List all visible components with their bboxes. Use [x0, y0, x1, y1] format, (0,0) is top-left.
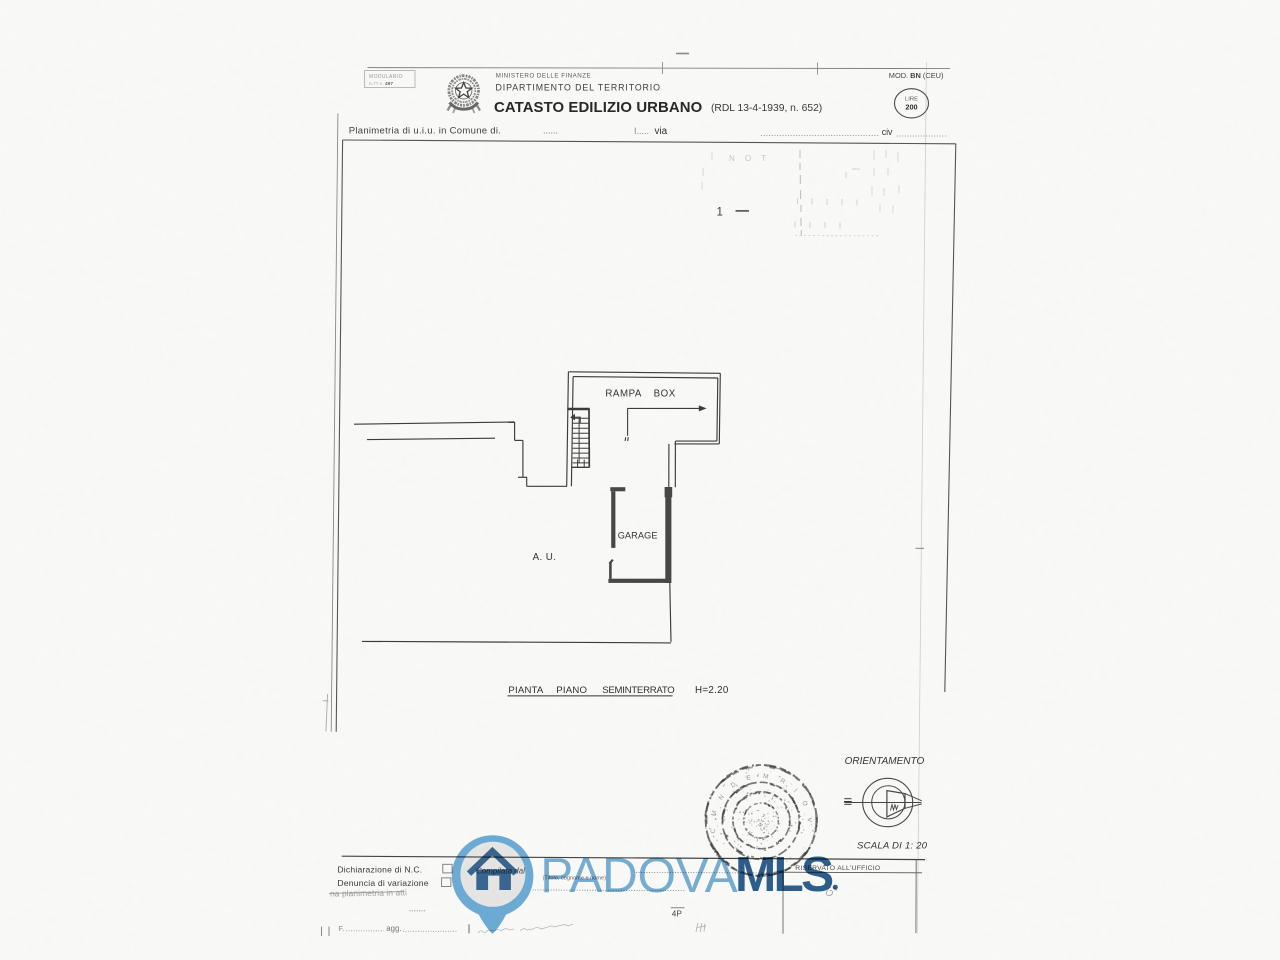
- svg-text:BOX: BOX: [654, 389, 676, 400]
- svg-text:MODULARIO: MODULARIO: [369, 74, 403, 80]
- svg-text:PIANTA: PIANTA: [508, 685, 544, 696]
- svg-text:F.: F.: [339, 924, 345, 933]
- svg-text:I.....: I.....: [634, 126, 649, 136]
- svg-text:H=2.20: H=2.20: [695, 685, 729, 696]
- svg-text:GARAGE: GARAGE: [618, 531, 658, 541]
- svg-text:MINISTERO DELLE FINANZE: MINISTERO DELLE FINANZE: [496, 73, 591, 80]
- svg-text:agg.: agg.: [386, 924, 401, 933]
- svg-text:200: 200: [905, 103, 917, 112]
- svg-text:CATASTO EDILIZIO URBANO: CATASTO EDILIZIO URBANO: [494, 100, 702, 116]
- svg-text:Dichiarazione di N.C.: Dichiarazione di N.C.: [337, 865, 422, 875]
- svg-text:RAMPA: RAMPA: [605, 389, 641, 400]
- svg-text:......: ......: [543, 126, 558, 136]
- svg-text:DIPARTIMENTO DEL TERRITORIO: DIPARTIMENTO DEL TERRITORIO: [496, 82, 661, 92]
- svg-text:via: via: [655, 126, 668, 137]
- svg-text:1: 1: [717, 207, 723, 219]
- svg-text:A. U.: A. U.: [533, 552, 557, 563]
- svg-text:PIANO: PIANO: [556, 685, 587, 696]
- svg-text:MLS: MLS: [735, 847, 833, 902]
- svg-text:Denuncia di variazione: Denuncia di variazione: [337, 878, 428, 888]
- svg-text:civ: civ: [882, 127, 893, 137]
- svg-text:ORIENTAMENTO: ORIENTAMENTO: [845, 756, 925, 767]
- svg-text:SEMINTERRATO: SEMINTERRATO: [602, 685, 674, 696]
- svg-text:MOD. BN (CEU): MOD. BN (CEU): [889, 71, 944, 80]
- svg-text:N O T: N O T: [729, 154, 770, 163]
- svg-text:PADOVA: PADOVA: [540, 848, 737, 903]
- svg-text:4P: 4P: [672, 910, 683, 919]
- svg-text:SCALA DI 1: 20: SCALA DI 1: 20: [857, 841, 928, 852]
- svg-text:n.77.n. 497: n.77.n. 497: [369, 81, 393, 87]
- svg-text:(RDL 13-4-1939, n. 652): (RDL 13-4-1939, n. 652): [711, 103, 822, 114]
- svg-text:Planimetria di u.i.u. in Comun: Planimetria di u.i.u. in Comune di.: [349, 125, 502, 136]
